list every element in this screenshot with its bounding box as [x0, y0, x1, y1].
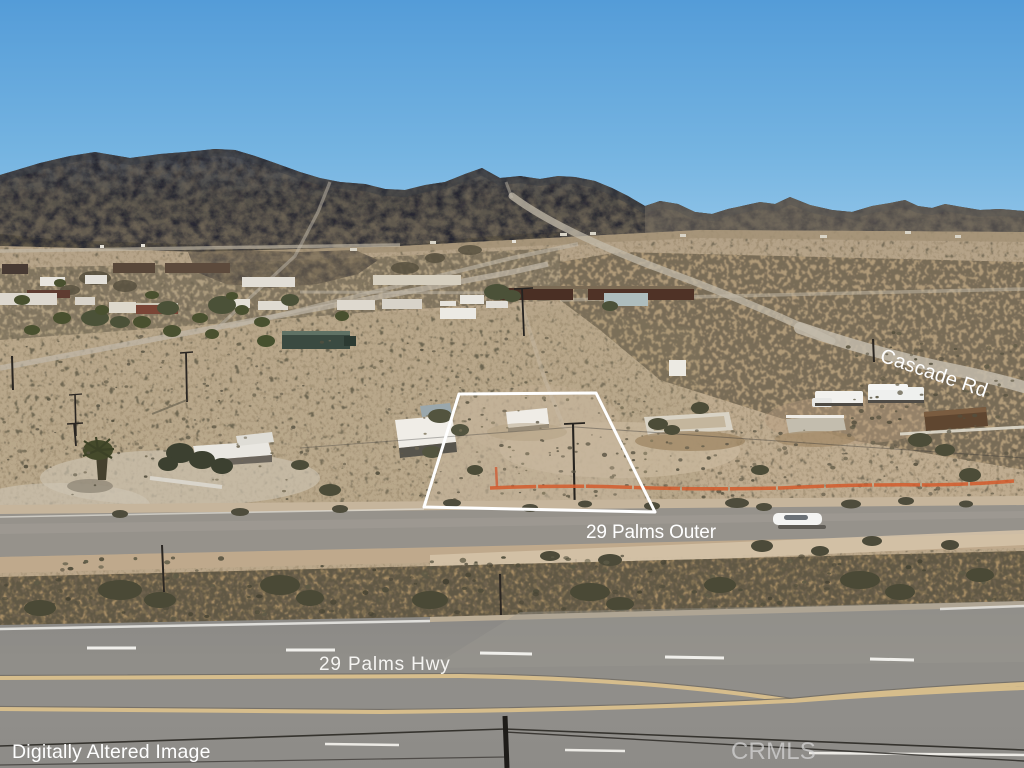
- svg-text:CRMLS: CRMLS: [731, 738, 816, 765]
- svg-text:Digitally Altered Image: Digitally Altered Image: [12, 741, 211, 763]
- svg-text:29 Palms Hwy: 29 Palms Hwy: [319, 654, 451, 675]
- svg-text:29 Palms Outer: 29 Palms Outer: [586, 522, 717, 543]
